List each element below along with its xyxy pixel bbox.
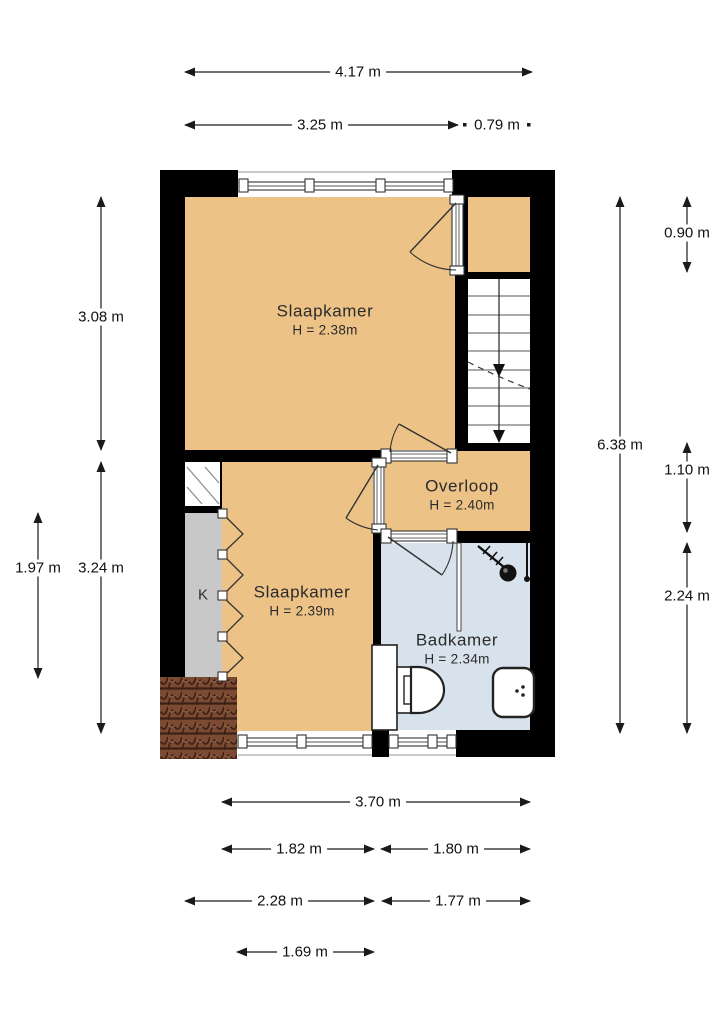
- dim-bottom-row1: 3.70 m: [350, 794, 406, 811]
- dim-right-bottom: 2.24 m: [659, 588, 715, 605]
- dim-bottom-row4: 1.69 m: [277, 944, 333, 961]
- washbasin: [493, 668, 534, 717]
- room-height-slaapkamer-1: H = 2.38m: [292, 323, 357, 337]
- room-height-overloop: H = 2.40m: [429, 498, 494, 512]
- dim-dot-right: [527, 123, 531, 127]
- wall-stairs-overloop: [455, 443, 530, 451]
- dim-left-lower: 3.24 m: [73, 560, 129, 577]
- room-name-slaapkamer-2: Slaapkamer: [254, 584, 351, 601]
- floor-stair-nook: [468, 197, 530, 272]
- floorplan-drawing: [0, 0, 724, 1024]
- dim-top-right: 0.79 m: [469, 117, 525, 134]
- dim-left-closet: 1.97 m: [10, 560, 66, 577]
- dim-right-total: 6.38 m: [592, 437, 648, 454]
- dim-bottom-row3-right: 1.77 m: [430, 893, 486, 910]
- dim-right-mid: 1.10 m: [659, 462, 715, 479]
- wall-overloop-bath: [455, 531, 530, 543]
- stairs: [468, 279, 530, 443]
- wall-nook-stairs: [468, 272, 530, 279]
- dim-bottom-row2-left: 1.82 m: [271, 841, 327, 858]
- dim-bottom-row2-right: 1.80 m: [428, 841, 484, 858]
- wall-bed1-bed2: [185, 450, 385, 462]
- dim-left-upper: 3.08 m: [73, 309, 129, 326]
- wall-bottom-pier: [372, 730, 389, 757]
- window-bottom-bathroom: [389, 731, 456, 757]
- window-bottom-bedroom: [238, 731, 372, 757]
- room-name-slaapkamer-1: Slaapkamer: [277, 303, 374, 320]
- roof-tiles: [160, 677, 237, 759]
- room-name-overloop: Overloop: [425, 478, 499, 495]
- wall-left: [160, 170, 185, 682]
- dim-top-total: 4.17 m: [330, 64, 386, 81]
- room-height-slaapkamer-2: H = 2.39m: [269, 604, 334, 618]
- shower-partition: [457, 543, 461, 631]
- wall-void-right: [220, 462, 222, 506]
- room-name-badkamer: Badkamer: [416, 632, 498, 649]
- dim-dot-left: [463, 123, 467, 127]
- dim-top-left: 3.25 m: [292, 117, 348, 134]
- wall-bottom-right: [456, 730, 555, 757]
- dim-right-top: 0.90 m: [659, 225, 715, 242]
- dim-bottom-row3-left: 2.28 m: [252, 893, 308, 910]
- wall-void-bottom: [185, 506, 222, 513]
- floorplan-canvas: Slaapkamer H = 2.38m Slaapkamer H = 2.39…: [0, 0, 724, 1024]
- wall-right: [530, 170, 555, 757]
- room-name-closet: K: [198, 588, 208, 603]
- room-height-badkamer: H = 2.34m: [424, 652, 489, 666]
- window-top: [238, 170, 453, 196]
